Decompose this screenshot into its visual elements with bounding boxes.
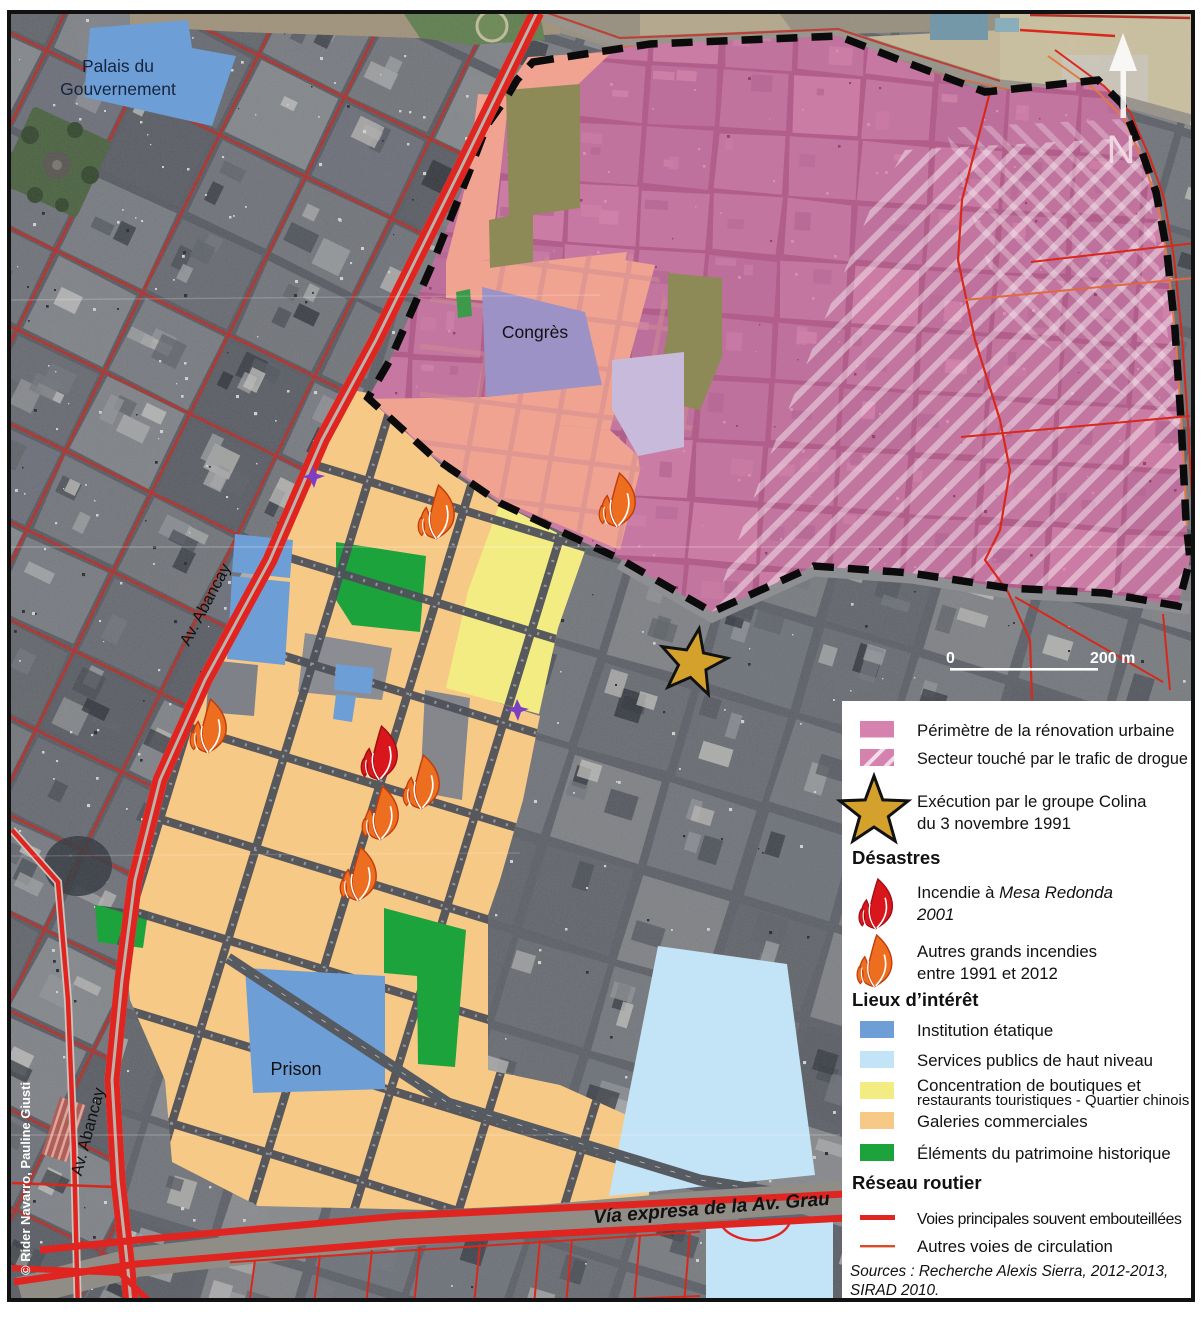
svg-text:Congrès: Congrès bbox=[502, 322, 568, 342]
svg-text:du 3 novembre 1991: du 3 novembre 1991 bbox=[917, 814, 1071, 833]
svg-text:Palais du: Palais du bbox=[82, 56, 154, 76]
svg-text:Voies principales souvent embo: Voies principales souvent embouteillées bbox=[917, 1211, 1182, 1228]
svg-text:SIRAD 2010.: SIRAD 2010. bbox=[850, 1282, 939, 1299]
svg-text:© Rider Navarro, Pauline Giust: © Rider Navarro, Pauline Giusti bbox=[18, 1082, 33, 1275]
svg-text:Sources : Recherche Alexis Sie: Sources : Recherche Alexis Sierra, 2012-… bbox=[850, 1263, 1168, 1280]
svg-text:N: N bbox=[1107, 128, 1136, 172]
svg-text:entre 1991 et 2012: entre 1991 et 2012 bbox=[917, 964, 1058, 983]
svg-text:Autres grands incendies: Autres grands incendies bbox=[917, 942, 1097, 961]
svg-text:Désastres: Désastres bbox=[852, 847, 940, 868]
svg-text:restaurants touristiques - Qua: restaurants touristiques - Quartier chin… bbox=[917, 1093, 1189, 1109]
svg-text:Galeries commerciales: Galeries commerciales bbox=[917, 1112, 1088, 1131]
svg-text:Prison: Prison bbox=[270, 1059, 321, 1079]
svg-text:2001: 2001 bbox=[916, 905, 954, 924]
svg-text:Incendie à Mesa Redonda: Incendie à Mesa Redonda bbox=[917, 883, 1113, 902]
svg-text:200 m: 200 m bbox=[1090, 650, 1135, 667]
svg-text:Périmètre de la rénovation urb: Périmètre de la rénovation urbaine bbox=[917, 721, 1174, 740]
svg-text:Autres voies de circulation: Autres voies de circulation bbox=[917, 1237, 1113, 1256]
svg-text:Exécution par le groupe Colina: Exécution par le groupe Colina bbox=[917, 792, 1147, 811]
svg-text:Gouvernement: Gouvernement bbox=[60, 79, 176, 99]
svg-text:Réseau routier: Réseau routier bbox=[852, 1172, 982, 1193]
svg-text:Éléments du patrimoine histori: Éléments du patrimoine historique bbox=[917, 1144, 1171, 1163]
svg-text:0: 0 bbox=[946, 650, 955, 667]
svg-text:Lieux d’intérêt: Lieux d’intérêt bbox=[852, 989, 978, 1010]
svg-text:Institution étatique: Institution étatique bbox=[917, 1021, 1053, 1040]
svg-text:Secteur touché par le trafic d: Secteur touché par le trafic de drogue bbox=[917, 750, 1188, 768]
svg-text:Services publics de haut nivea: Services publics de haut niveau bbox=[917, 1051, 1153, 1070]
